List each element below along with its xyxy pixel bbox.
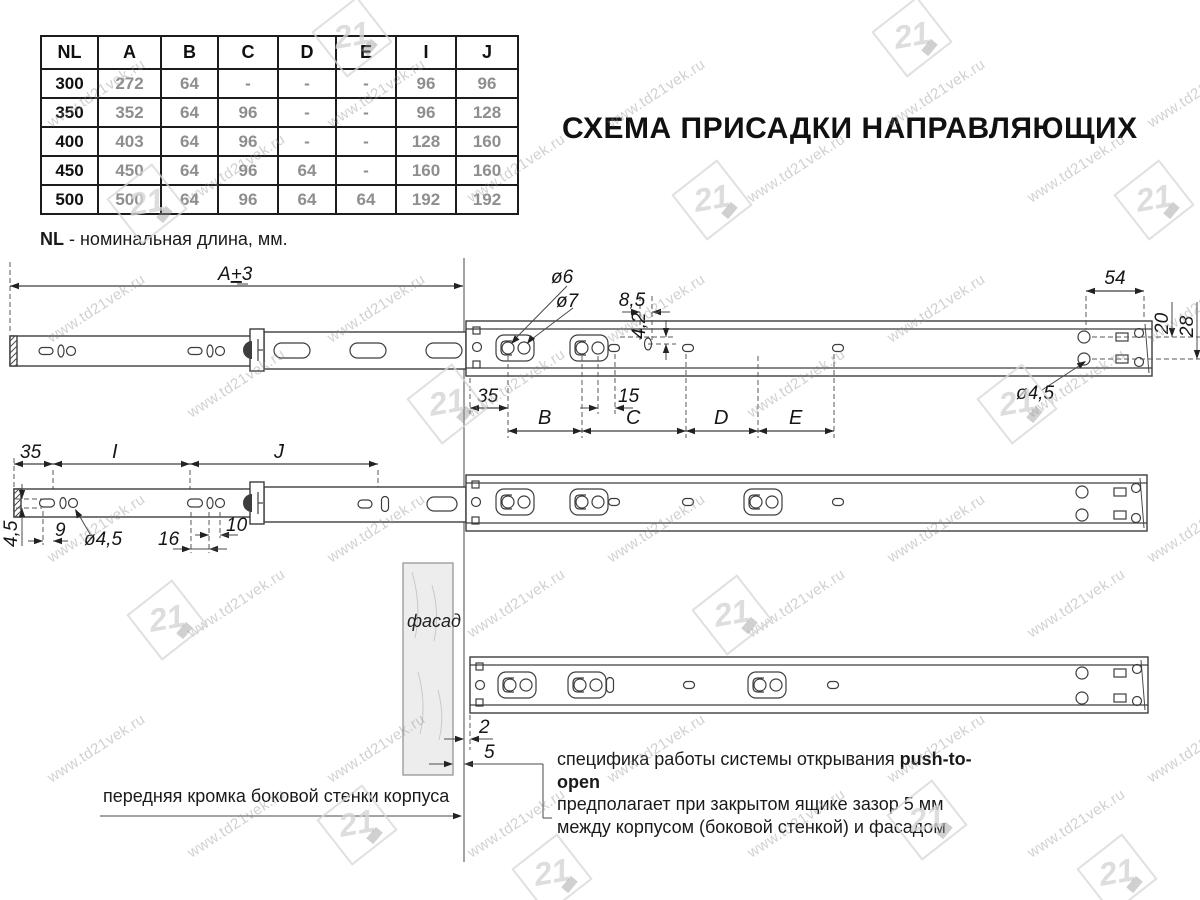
dim-back-offset-35: 35 bbox=[20, 442, 42, 463]
dim-span-e: E bbox=[789, 407, 803, 429]
dim-offset-8-5: 8,5 bbox=[619, 290, 646, 311]
dim-total-length: A+3 bbox=[217, 264, 253, 285]
dim-offset-4-2: 4,2 bbox=[629, 312, 650, 339]
facade-label: фасад bbox=[407, 611, 461, 631]
technical-drawing: A+3 ø6 ø7 8,5 4,2 35 15 B C D E 54 20 28… bbox=[0, 0, 1200, 900]
dim-span-d: D bbox=[714, 407, 728, 429]
dim-hole-dia45-mid: ø4,5 bbox=[84, 529, 122, 550]
dim-span-i: I bbox=[112, 441, 118, 463]
dim-front-offset-35: 35 bbox=[477, 386, 499, 407]
dim-offset-10: 10 bbox=[226, 515, 248, 536]
dim-row-20: 20 bbox=[1152, 312, 1173, 335]
dim-hole-dia45-top: ø4,5 bbox=[1016, 383, 1054, 404]
dim-end-54: 54 bbox=[1104, 268, 1125, 289]
dim-gap-5: 5 bbox=[484, 742, 495, 763]
dim-offset-9: 9 bbox=[55, 520, 66, 541]
dim-hole-dia6: ø6 bbox=[551, 267, 574, 288]
dim-span-c: C bbox=[626, 407, 641, 429]
drawing-geometry bbox=[10, 258, 1200, 862]
dim-gap-2: 2 bbox=[478, 717, 490, 738]
dim-row-28: 28 bbox=[1177, 315, 1198, 338]
dim-offset-16: 16 bbox=[158, 529, 180, 550]
drawing-sheet: NLABCDEIJ30027264---96963503526496--9612… bbox=[0, 0, 1200, 900]
dim-spacing-15: 15 bbox=[618, 386, 640, 407]
dim-edge-4-5: 4,5 bbox=[1, 520, 22, 547]
dim-span-b: B bbox=[538, 407, 551, 429]
dim-hole-dia7: ø7 bbox=[556, 291, 580, 312]
dim-span-j: J bbox=[273, 441, 285, 463]
